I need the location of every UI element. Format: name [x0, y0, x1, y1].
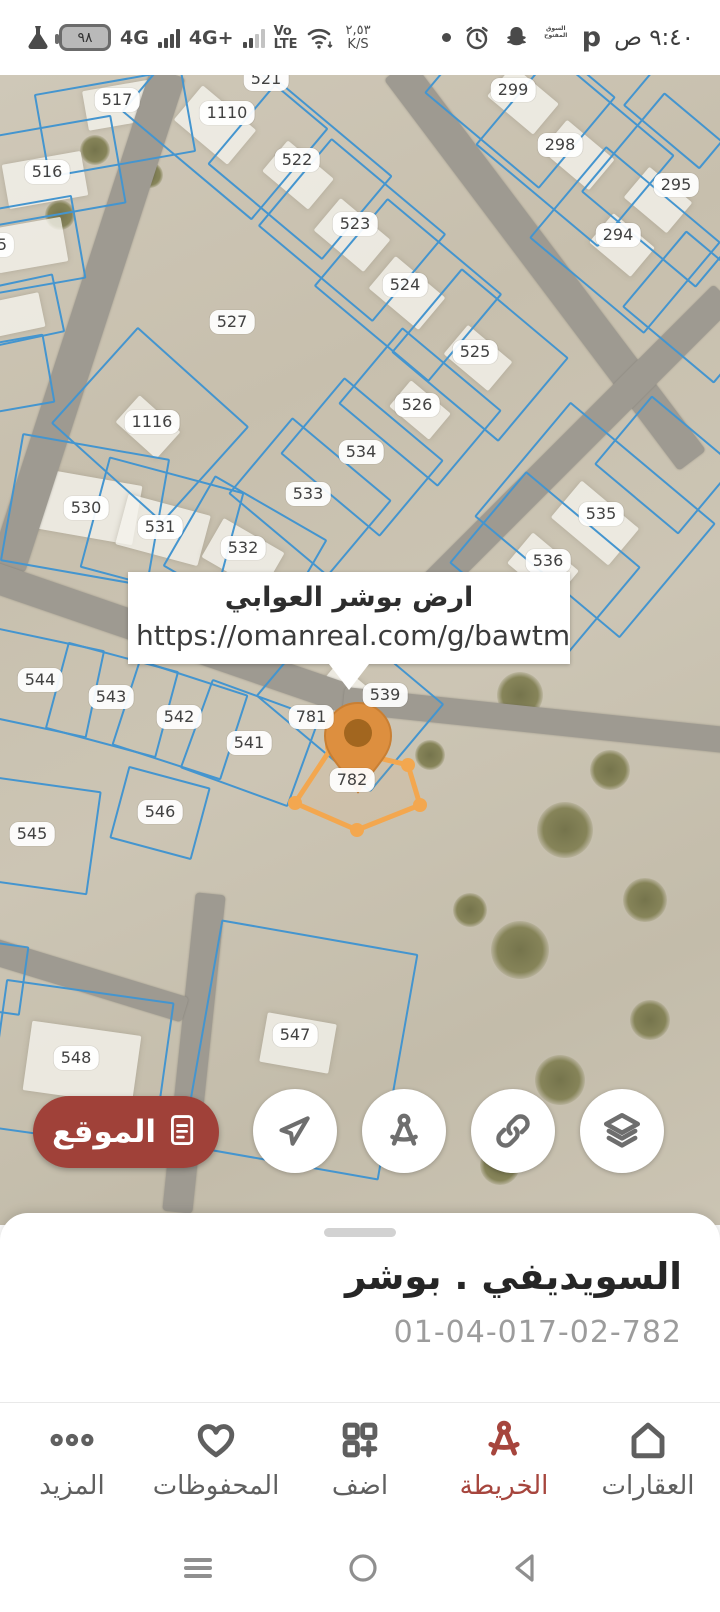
road — [409, 284, 720, 609]
parcel-boundary — [0, 334, 55, 417]
parcel-number-label: 1110 — [200, 101, 255, 125]
parcel-boundary — [594, 395, 720, 535]
building — [116, 395, 181, 459]
building — [174, 85, 257, 164]
parcel-boundary — [228, 417, 392, 577]
parcel-boundary — [109, 766, 211, 860]
location-button-label: الموقع — [52, 1114, 156, 1150]
location-button[interactable]: الموقع — [33, 1096, 219, 1168]
building — [444, 325, 513, 391]
parcel-boundary — [121, 75, 328, 221]
battery-level: ٩٨ — [77, 30, 92, 46]
parcel-number-label: 543 — [89, 685, 134, 709]
parcel-number-label: 1116 — [125, 410, 180, 434]
nav-item-more[interactable]: المزيد — [0, 1403, 144, 1523]
bush-patch — [137, 162, 163, 188]
map-compass-icon — [483, 1417, 525, 1463]
parcel-boundary — [622, 230, 720, 384]
link-icon — [493, 1111, 533, 1151]
nav-label: اضف — [332, 1471, 388, 1501]
road — [0, 75, 185, 573]
parcel-number-label: 524 — [383, 273, 428, 297]
p-app-icon: p — [582, 24, 601, 51]
polygon-vertices — [288, 740, 427, 837]
parcel-boundary — [0, 934, 29, 1016]
parcel-number-label: 526 — [395, 393, 440, 417]
building — [0, 292, 46, 338]
road — [0, 938, 189, 1023]
building — [589, 213, 655, 277]
road — [342, 687, 720, 753]
parcel-number-label: 5 — [0, 233, 14, 257]
parcel-boundary — [111, 659, 248, 780]
more-dots-icon — [49, 1417, 95, 1463]
alarm-icon — [464, 25, 490, 51]
parcel-number-label: 542 — [157, 705, 202, 729]
signal-bars-primary — [158, 28, 180, 48]
parcel-number-label: 299 — [491, 78, 536, 102]
parcel-boundary — [623, 75, 720, 170]
callout-tail — [329, 664, 369, 690]
navigation-arrow-icon — [276, 1112, 314, 1150]
home-icon — [627, 1417, 669, 1463]
parcel-boundary — [180, 679, 321, 808]
location-title: السويديفي . بوشر — [345, 1255, 682, 1298]
parcel-number-label: 298 — [538, 133, 583, 157]
document-icon — [168, 1114, 200, 1150]
recents-button[interactable] — [180, 1553, 216, 1583]
volte-indicator: Vo LTE — [274, 25, 298, 51]
nav-item-favorites[interactable]: المحفوظات — [144, 1403, 288, 1523]
share-link-button[interactable] — [471, 1089, 555, 1173]
parcel-number-label: 782 — [330, 768, 375, 792]
building — [314, 198, 391, 272]
nav-label: الخريطة — [460, 1471, 549, 1501]
signal-bars-secondary — [243, 28, 265, 48]
building — [115, 494, 211, 566]
parcel-boundary — [34, 75, 196, 178]
parcel-number-label: 541 — [227, 731, 272, 755]
parcel-number-label: 521 — [244, 75, 289, 91]
parcel-number-label: 531 — [138, 515, 183, 539]
building — [541, 120, 614, 190]
building — [259, 1012, 337, 1073]
status-bar: ٩٨ 4G 4G+ Vo LTE ٢,٥٣ K/S السوق المفتوح … — [0, 0, 720, 75]
snapchat-icon — [503, 25, 530, 51]
parcel-number-label: 295 — [654, 173, 699, 197]
nav-label: العقارات — [601, 1471, 694, 1501]
building — [82, 79, 158, 131]
building — [23, 1021, 142, 1106]
wifi-icon — [306, 26, 336, 50]
building — [389, 380, 451, 439]
nav-item-properties[interactable]: العقارات — [576, 1403, 720, 1523]
bush-patch — [453, 893, 487, 927]
bush-patch — [535, 1055, 585, 1105]
map-callout[interactable]: ارض بوشر العوابي https://omanreal.com/g/… — [128, 572, 570, 664]
parcel-number-label: 544 — [18, 668, 63, 692]
parcel-boundary — [0, 273, 65, 350]
parcel-boundary — [0, 433, 170, 587]
callout-title: ارض بوشر العوابي — [136, 582, 562, 613]
clock-time: ٩:٤٠ ص — [614, 25, 694, 51]
battery-saver-flask-icon — [26, 25, 50, 51]
callout-url[interactable]: https://omanreal.com/g/bawtm — [136, 619, 562, 652]
drafting-compass-icon — [384, 1111, 424, 1151]
parcel-number-label: 533 — [286, 482, 331, 506]
parcel-number-label: 523 — [333, 212, 378, 236]
map-pin-icon — [325, 703, 391, 792]
bush-patch — [623, 878, 667, 922]
home-button[interactable] — [346, 1551, 380, 1585]
parcel-boundary — [51, 327, 249, 524]
parcel-boundary — [338, 327, 502, 487]
nav-item-add[interactable]: اضف — [288, 1403, 432, 1523]
notification-dot-icon — [442, 33, 451, 42]
parcel-boundary — [314, 198, 503, 383]
parcel-boundary — [207, 80, 393, 261]
nav-label: المحفوظات — [153, 1471, 280, 1501]
road — [384, 75, 706, 471]
phone-screen: ٩٨ 4G 4G+ Vo LTE ٢,٥٣ K/S السوق المفتوح … — [0, 0, 720, 1612]
building — [0, 217, 68, 273]
measure-button[interactable] — [362, 1089, 446, 1173]
android-navigation-bar — [0, 1523, 720, 1612]
layers-icon — [601, 1110, 643, 1152]
parcel-boundary — [0, 195, 86, 300]
parcel-number-label: 517 — [95, 88, 140, 112]
parcel-number-label: 294 — [596, 223, 641, 247]
bush-patch — [497, 672, 543, 718]
parcel-boundary — [0, 115, 127, 230]
parcel-number-label: 781 — [289, 705, 334, 729]
building — [624, 167, 693, 234]
building — [262, 140, 334, 209]
bush-patch — [491, 921, 549, 979]
bottom-sheet[interactable]: السويديفي . بوشر 01-04-017-02-782 العقار… — [0, 1213, 720, 1612]
parcel-number-label: 532 — [221, 536, 266, 560]
layers-button[interactable] — [580, 1089, 664, 1173]
parcel-number-label: 530 — [64, 496, 109, 520]
satellite-map[interactable]: 5175165521111052252352452729929829529452… — [0, 75, 720, 1225]
building — [551, 481, 639, 566]
parcel-boundary — [581, 92, 720, 288]
parcel-number-label: 545 — [10, 822, 55, 846]
add-grid-icon — [339, 1417, 381, 1463]
parcel-boundary — [280, 377, 444, 537]
selected-parcel-polygon — [295, 747, 420, 830]
building — [34, 469, 143, 545]
network-type-secondary: 4G+ — [189, 27, 234, 49]
building — [369, 256, 446, 330]
parcel-number-label: 525 — [453, 340, 498, 364]
parcel-number-label: 547 — [273, 1023, 318, 1047]
bush-patch — [630, 1000, 670, 1040]
parcel-boundary — [0, 628, 105, 739]
parcel-number-label: 527 — [210, 310, 255, 334]
navigate-button[interactable] — [253, 1089, 337, 1173]
parcel-boundary — [424, 75, 616, 189]
opensooq-icon: السوق المفتوح — [543, 25, 569, 51]
parcel-number-label: 534 — [339, 440, 384, 464]
parcel-number-label: 536 — [526, 549, 571, 573]
bush-patch — [590, 750, 630, 790]
heart-icon — [194, 1417, 238, 1463]
parcel-code: 01-04-017-02-782 — [394, 1315, 682, 1350]
nav-label: المزيد — [39, 1471, 104, 1501]
parcel-boundary — [258, 138, 447, 323]
battery-indicator: ٩٨ — [59, 24, 111, 51]
bush-patch — [537, 802, 593, 858]
bottom-navigation: العقارات الخريطة اضف المحفوظات المزيد — [0, 1403, 720, 1523]
parcel-number-label: 535 — [579, 502, 624, 526]
parcel-number-label: 516 — [25, 160, 70, 184]
bush-patch — [80, 135, 110, 165]
parcel-number-label: 539 — [363, 683, 408, 707]
building — [2, 151, 89, 209]
drag-handle[interactable] — [324, 1228, 396, 1237]
parcel-number-label: 548 — [54, 1046, 99, 1070]
parcel-boundary — [529, 146, 720, 334]
nav-item-map[interactable]: الخريطة — [432, 1403, 576, 1523]
network-type-primary: 4G — [120, 27, 149, 49]
back-button[interactable] — [510, 1552, 540, 1584]
parcel-boundary — [475, 75, 675, 247]
bush-patch — [415, 740, 445, 770]
parcel-boundary — [391, 268, 569, 442]
parcel-boundary — [0, 775, 102, 896]
bush-patch — [45, 200, 75, 230]
parcel-number-label: 546 — [138, 800, 183, 824]
parcel-number-label: 522 — [275, 148, 320, 172]
building — [487, 75, 559, 135]
network-speed: ٢,٥٣ K/S — [345, 24, 370, 52]
